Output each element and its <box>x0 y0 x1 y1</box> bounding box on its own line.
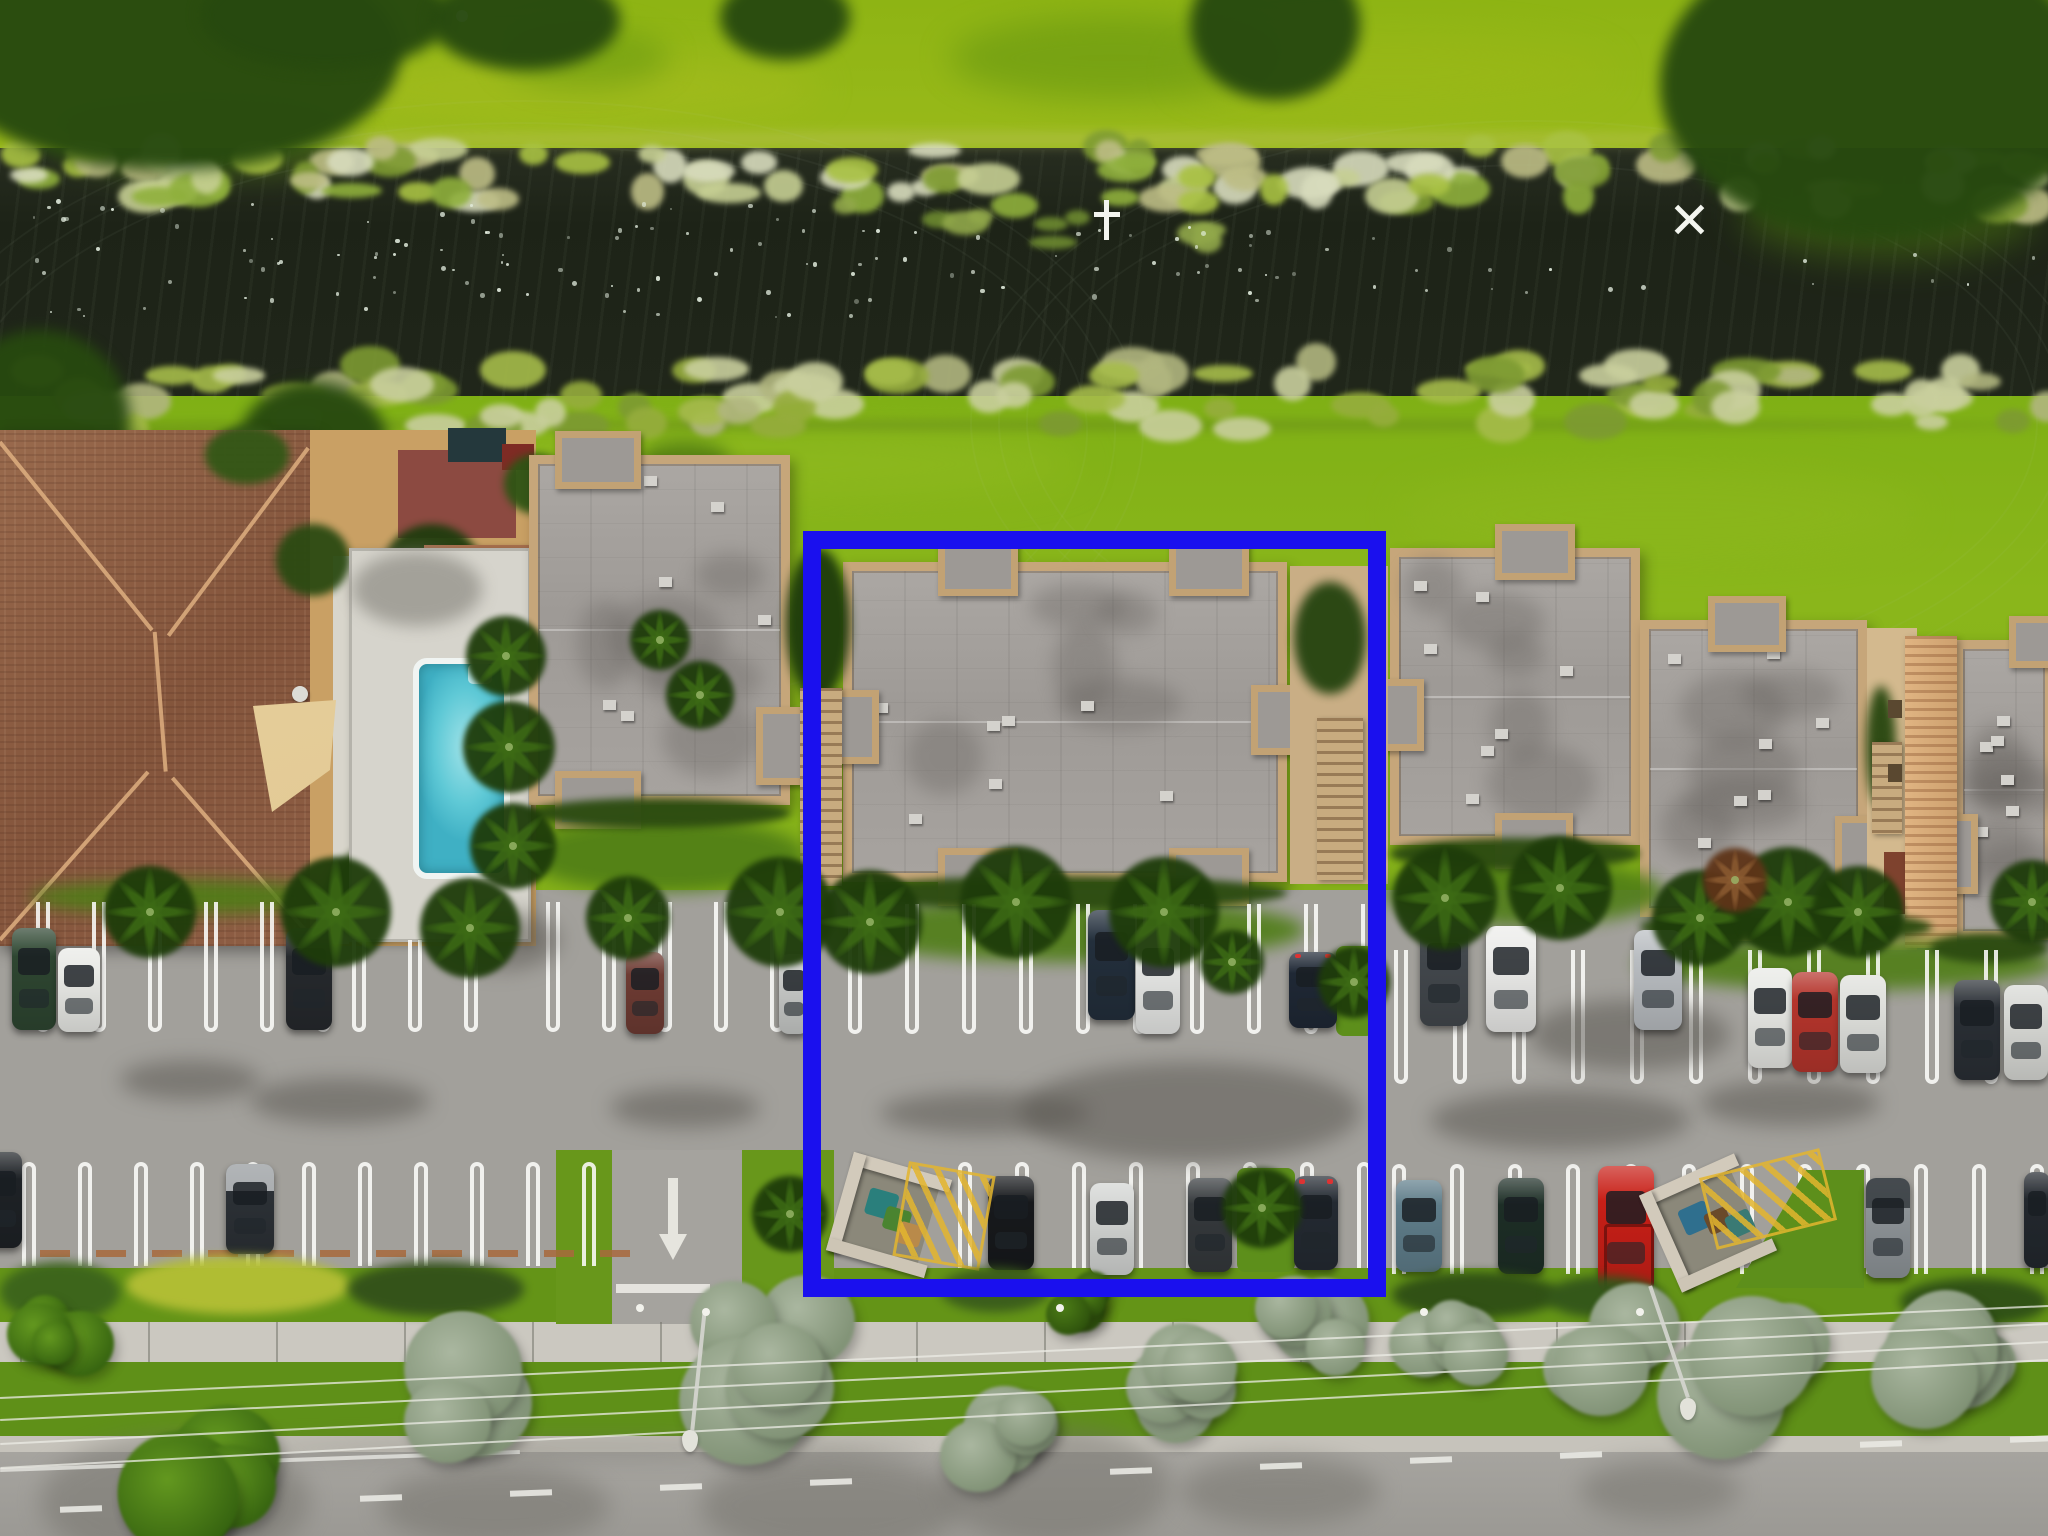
street-hedge <box>126 1256 350 1314</box>
water-sparkle <box>33 216 36 219</box>
palm-heart <box>776 908 784 916</box>
canal-bank-vegetation <box>370 367 434 402</box>
canal-bank-vegetation <box>682 160 735 182</box>
water-sparkle <box>572 281 577 286</box>
car-windshield <box>1504 1197 1537 1222</box>
water-sparkle <box>635 225 638 228</box>
water-sparkle <box>1488 268 1492 272</box>
car <box>1954 980 2000 1080</box>
roof-vent <box>1816 718 1829 728</box>
water-sparkle <box>697 297 702 302</box>
water-sparkle <box>858 263 861 266</box>
canal-bank-vegetation <box>1178 165 1216 188</box>
roof-vent <box>1698 838 1711 848</box>
car-windshield <box>783 970 805 991</box>
water-sparkle <box>1325 248 1328 251</box>
parking-stripe <box>260 902 274 1032</box>
roof-vent <box>644 476 657 486</box>
roof-vent <box>1734 796 1747 806</box>
car-windshield <box>1872 1198 1904 1224</box>
car-rear-window <box>1403 1235 1434 1252</box>
roof-vent <box>711 502 724 512</box>
parking-stripe <box>1394 950 1408 1084</box>
sidewalk-joint <box>148 1322 150 1362</box>
wheel-stop <box>96 1250 126 1257</box>
water-sparkle <box>111 208 114 211</box>
street-tree <box>1306 1319 1365 1376</box>
canal-bank-vegetation <box>996 382 1032 408</box>
survey-marker-plus <box>1094 212 1120 217</box>
water-sparkle <box>364 307 368 311</box>
pavement-stain <box>1700 1080 1880 1126</box>
car <box>626 952 664 1034</box>
roof-vent <box>2006 806 2019 816</box>
car-rear-window <box>1428 984 1461 1003</box>
roof-stain <box>1445 592 1545 650</box>
roof-vent <box>1466 794 1479 804</box>
water-sparkle <box>1094 267 1098 271</box>
parking-stripe <box>1914 1164 1928 1274</box>
car-rear-window <box>2028 1230 2046 1247</box>
water-sparkle <box>1238 268 1242 272</box>
canal-bank-vegetation <box>908 143 961 158</box>
car-rear-window <box>1799 1032 1830 1050</box>
canal-bank-vegetation <box>327 148 375 176</box>
sidewalk-joint <box>532 1322 534 1362</box>
street-tree <box>32 1322 76 1364</box>
canal-bank-vegetation <box>480 351 546 389</box>
car <box>1498 1178 1544 1274</box>
stop-bar <box>616 1284 710 1293</box>
palm-heart <box>1731 876 1739 884</box>
canal-bank-vegetation <box>1066 385 1125 413</box>
water-sparkle <box>501 261 503 263</box>
canal-bank-vegetation <box>697 183 761 204</box>
water-sparkle <box>1076 232 1080 236</box>
car-rear-window <box>1961 1040 1992 1058</box>
water-sparkle <box>83 315 85 317</box>
roof-vent <box>758 615 771 625</box>
water-sparkle <box>404 243 408 247</box>
canal-bank-vegetation <box>1554 156 1610 189</box>
pavement-arrow-stem <box>668 1178 678 1234</box>
canal-bank-vegetation <box>1034 217 1069 231</box>
canal-bank-vegetation <box>741 151 778 174</box>
canal-bank-vegetation <box>1139 410 1202 443</box>
water-sparkle <box>1175 237 1179 241</box>
survey-marker-plus <box>1104 200 1109 240</box>
car-rear-window <box>19 989 49 1007</box>
water-sparkle <box>160 208 165 213</box>
water-sparkle <box>730 248 734 252</box>
road-tree-shadow <box>380 1466 610 1536</box>
canal-bank-vegetation <box>480 404 522 427</box>
parking-stripe <box>78 1162 92 1266</box>
canal-bank-vegetation <box>1960 373 2002 390</box>
water-sparkle <box>1195 245 1199 249</box>
pole-base <box>1056 1304 1064 1312</box>
parking-stripe <box>582 1162 596 1266</box>
canal-bank-vegetation <box>787 362 843 401</box>
roof-stair-tower <box>1495 524 1575 580</box>
car-rear-window <box>65 998 94 1013</box>
canal-bank-vegetation <box>519 143 547 165</box>
water-sparkle <box>100 206 105 211</box>
canal-bank-vegetation <box>555 151 611 174</box>
roof-stain <box>695 553 765 597</box>
canal-bank-vegetation <box>1115 154 1157 172</box>
canal-bank-vegetation <box>1260 174 1288 205</box>
car-windshield <box>2028 1191 2047 1216</box>
street-tree <box>1046 1293 1090 1335</box>
water-sparkle <box>243 249 246 252</box>
courtyard-structure <box>448 428 506 462</box>
water-sparkle <box>1266 230 1270 234</box>
parking-stripe <box>1566 1164 1580 1274</box>
palm-heart <box>656 636 664 644</box>
water-sparkle <box>618 228 623 233</box>
car-rear-window <box>784 1002 804 1016</box>
canal-bank-vegetation <box>991 193 1038 218</box>
parking-stripe <box>358 1162 372 1266</box>
canal-bank-vegetation <box>1996 409 2030 433</box>
canal-bank-vegetation <box>10 167 48 183</box>
parking-stripe <box>22 1162 36 1266</box>
water-sparkle <box>143 307 145 309</box>
car-rear-window <box>1755 1028 1785 1046</box>
water-sparkle <box>558 268 562 272</box>
road-tree-shadow <box>1580 1460 1740 1520</box>
water-sparkle <box>903 257 907 261</box>
sidewalk-joint <box>1044 1322 1046 1362</box>
water-sparkle <box>393 253 396 256</box>
water-sparkle <box>440 249 442 251</box>
canal-bank-vegetation <box>409 138 467 162</box>
water-sparkle <box>480 293 485 298</box>
street-tree <box>1871 1326 1978 1429</box>
car-rear-window <box>1505 1236 1536 1253</box>
water-sparkle <box>47 206 50 209</box>
roof-vent <box>1495 729 1508 739</box>
car-windshield <box>64 965 94 987</box>
street-hedge <box>348 1262 524 1316</box>
water-sparkle <box>373 276 376 279</box>
roof-vent <box>659 577 672 587</box>
palm-heart <box>2028 898 2036 906</box>
road-tree-shadow <box>230 1440 930 1456</box>
car-windshield <box>233 1182 268 1205</box>
wheel-stop <box>600 1250 630 1257</box>
water-sparkle <box>56 199 61 204</box>
water-sparkle <box>1931 279 1935 283</box>
car-windshield <box>1798 992 1831 1018</box>
palm-heart <box>1854 908 1862 916</box>
canal-bank-vegetation <box>717 397 760 424</box>
car <box>12 928 56 1030</box>
wheel-stop <box>152 1250 182 1257</box>
car-rear-window <box>293 989 324 1007</box>
water-sparkle <box>976 235 980 239</box>
water-sparkle <box>567 236 570 239</box>
roof-vent <box>603 700 616 710</box>
parking-stripe <box>470 1162 484 1266</box>
roof-stain <box>1490 690 1551 762</box>
car <box>1486 926 1536 1032</box>
water-sparkle <box>1373 285 1376 288</box>
water-sparkle <box>854 299 859 304</box>
car <box>1748 968 1792 1068</box>
water-sparkle <box>1092 294 1097 299</box>
car-rear-window <box>632 1001 658 1016</box>
water-sparkle <box>950 273 954 277</box>
palm-heart <box>505 743 513 751</box>
roof-vent <box>1476 592 1489 602</box>
courtyard-structure <box>398 450 516 538</box>
water-sparkle <box>374 256 377 259</box>
pavement-arrow-head <box>659 1234 687 1260</box>
car-windshield <box>631 968 658 989</box>
water-sparkle <box>1129 234 1132 237</box>
palm-heart <box>502 652 510 660</box>
between-building-courtyard <box>1888 700 1902 718</box>
car-rear-window <box>1847 1034 1878 1052</box>
parking-stripe <box>1450 1164 1464 1274</box>
parking-stripe <box>1925 950 1939 1084</box>
between-building-courtyard <box>1888 764 1902 782</box>
car <box>226 1164 274 1254</box>
canal-bank-vegetation <box>560 381 603 410</box>
highlight-rectangle <box>803 531 1386 1297</box>
water-sparkle <box>470 204 473 207</box>
street-tree <box>1552 1323 1649 1416</box>
canal-bank-vegetation <box>535 398 566 427</box>
palm-heart <box>466 924 474 932</box>
parking-stripe <box>302 1162 316 1266</box>
roof-stair-tower <box>2009 616 2048 668</box>
canal-bank-vegetation <box>1629 390 1678 419</box>
car <box>1396 1180 1442 1272</box>
car-windshield <box>2010 1004 2042 1029</box>
canal-bank-vegetation <box>1089 362 1139 389</box>
water-sparkle <box>279 260 283 264</box>
pool-deck-stain <box>352 552 482 626</box>
water-sparkle <box>875 257 877 259</box>
canal-bank-vegetation <box>213 367 265 384</box>
water-sparkle <box>1249 244 1252 247</box>
courtyard-tree <box>205 426 289 484</box>
canal-bank-vegetation <box>1564 403 1627 440</box>
palm-heart <box>786 1210 794 1218</box>
car-windshield <box>1493 947 1529 975</box>
roof-vent <box>1414 581 1427 591</box>
tile-mansard <box>1905 636 1957 948</box>
sidewalk-joint <box>660 1322 662 1362</box>
aerial-photo <box>0 0 2048 1536</box>
roof-vent <box>1997 716 2010 726</box>
water-sparkle <box>1292 272 1296 276</box>
hedge-row <box>529 798 790 828</box>
palm-heart <box>696 691 704 699</box>
parking-stripe <box>134 1162 148 1266</box>
car <box>0 1152 22 1248</box>
roof-vent <box>1759 739 1772 749</box>
car <box>58 948 100 1032</box>
water-sparkle <box>244 297 246 299</box>
water-sparkle <box>175 224 179 228</box>
palm-heart <box>624 914 632 922</box>
lane-dash <box>2010 1435 2048 1443</box>
roof-vent <box>1424 644 1437 654</box>
palm-heart <box>146 908 154 916</box>
water-sparkle <box>686 232 689 235</box>
car <box>1792 972 1838 1072</box>
water-sparkle <box>1549 268 1552 271</box>
canal-bank-vegetation <box>833 197 857 215</box>
parking-stripe <box>1972 1164 1986 1274</box>
parking-stripe <box>408 940 422 1032</box>
canal-bank-vegetation <box>1501 144 1549 178</box>
canal-bank-vegetation <box>968 209 994 224</box>
water-sparkle <box>96 247 100 251</box>
car <box>1598 1166 1654 1292</box>
roof-vent <box>1668 654 1681 664</box>
car-rear-window <box>234 1218 267 1234</box>
car-windshield <box>1960 1000 1993 1026</box>
canal-bank-vegetation <box>1903 379 1940 418</box>
roof-vent <box>1758 790 1771 800</box>
palm-heart <box>1696 914 1704 922</box>
roof-vent <box>1991 736 2004 746</box>
water-sparkle <box>486 231 489 234</box>
parking-stripe <box>526 1162 540 1266</box>
car-rear-window <box>0 1210 16 1227</box>
parking-stripe <box>414 1162 428 1266</box>
water-sparkle <box>971 270 975 274</box>
roof-vent <box>621 711 634 721</box>
car <box>2024 1172 2048 1268</box>
roof-vent <box>1560 666 1573 676</box>
water-sparkle <box>499 233 503 237</box>
satellite-dish <box>292 686 308 702</box>
wheel-stop <box>320 1250 350 1257</box>
water-sparkle <box>1188 226 1191 229</box>
canal-bank-vegetation <box>1192 229 1221 253</box>
palm-heart <box>332 908 340 916</box>
parking-stripe <box>190 1162 204 1266</box>
roof-vent <box>1481 746 1494 756</box>
car-rear-window <box>2011 1042 2041 1059</box>
courtyard-tree <box>276 524 350 596</box>
wheel-stop <box>544 1250 574 1257</box>
roof-vent <box>2001 775 2014 785</box>
pole-base <box>702 1308 710 1316</box>
palm-heart <box>509 842 517 850</box>
wheel-stop <box>488 1250 518 1257</box>
water-sparkle <box>748 204 752 208</box>
water-sparkle <box>766 290 771 295</box>
water-sparkle <box>642 202 647 207</box>
canal-bank-vegetation <box>1204 398 1235 419</box>
water-sparkle <box>758 242 762 246</box>
water-sparkle <box>1372 237 1375 240</box>
water-sparkle <box>656 276 661 281</box>
water-sparkle <box>813 262 817 266</box>
pole-base <box>636 1304 644 1312</box>
car <box>1866 1178 1910 1278</box>
car-windshield <box>18 948 50 975</box>
canal-bank-vegetation <box>1178 190 1219 214</box>
car-rear-window <box>1873 1238 1903 1256</box>
canal-bank-vegetation <box>826 157 878 182</box>
pavement-stain <box>1530 1000 1730 1070</box>
car-windshield <box>1402 1198 1435 1222</box>
sidewalk-joint <box>276 1322 278 1362</box>
car-rear-window <box>1642 990 1675 1008</box>
canal-bank-vegetation <box>430 177 472 209</box>
canal-bank-vegetation <box>1408 174 1450 197</box>
water-sparkle <box>2032 256 2035 259</box>
car-windshield <box>1846 995 1879 1020</box>
canal-bank-vegetation <box>477 188 520 209</box>
roof-stair-tower <box>555 431 641 489</box>
wheel-stop <box>40 1250 70 1257</box>
water-sparkle <box>452 269 455 272</box>
palm-heart <box>1556 884 1564 892</box>
pavement-stain <box>120 1060 260 1100</box>
canal-bank-vegetation <box>631 173 664 210</box>
stairway <box>1872 742 1902 834</box>
water-sparkle <box>637 288 640 291</box>
pole-base <box>1420 1308 1428 1316</box>
water-sparkle <box>441 266 446 271</box>
water-sparkle <box>1176 272 1180 276</box>
water-sparkle <box>1525 291 1528 294</box>
pavement-stain <box>1430 1090 1690 1150</box>
water-sparkle <box>440 212 445 217</box>
car-windshield <box>0 1171 16 1196</box>
car-rear-window <box>1494 990 1528 1009</box>
roof-stair-tower <box>1708 596 1786 652</box>
street-tree <box>733 1323 823 1410</box>
palm-heart <box>1784 898 1792 906</box>
pavement-stain <box>250 1078 430 1124</box>
water-sparkle <box>336 292 339 295</box>
pole-base <box>1636 1308 1644 1316</box>
canal-bank-vegetation <box>1854 360 1912 382</box>
canal-bank-vegetation <box>1039 411 1082 436</box>
canal-bank-vegetation <box>957 163 1020 195</box>
wheel-stop <box>376 1250 406 1257</box>
pavement-stain <box>610 1088 760 1128</box>
water-sparkle <box>471 219 475 223</box>
car <box>2004 985 2048 1080</box>
palm-heart <box>1441 894 1449 902</box>
parking-stripe <box>204 902 218 1032</box>
car-windshield <box>1754 988 1786 1014</box>
water-sparkle <box>1447 247 1451 251</box>
water-sparkle <box>1201 231 1206 236</box>
water-sparkle <box>526 293 529 296</box>
canal-bank-vegetation <box>684 357 749 381</box>
car <box>1840 975 1886 1073</box>
wheel-stop <box>432 1250 462 1257</box>
canal-bank-vegetation <box>1274 366 1311 401</box>
canal-bank-vegetation <box>321 183 382 198</box>
